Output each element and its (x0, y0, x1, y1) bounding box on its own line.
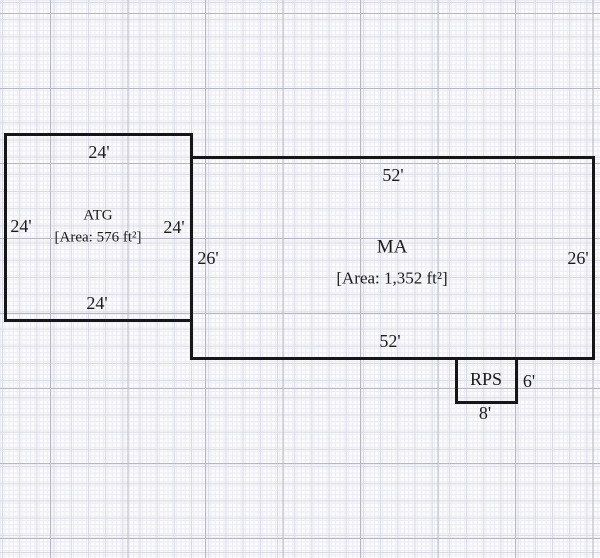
atg-dimension-right: 24' (163, 218, 184, 236)
ma-dimension-left: 26' (197, 249, 218, 267)
ma-dimension-top: 52' (382, 166, 403, 184)
rps-dimension-bottom: 8' (479, 404, 491, 422)
atg-dimension-top: 24' (88, 143, 109, 161)
atg-dimension-bottom: 24' (86, 294, 107, 312)
ma-room-name: MA (377, 238, 408, 257)
atg-room-name: ATG (83, 209, 112, 224)
ma-dimension-bottom: 52' (379, 332, 400, 350)
graph-paper-canvas: 24' 24' 24' 24' ATG [Area: 576 ft²] 52' … (0, 0, 600, 558)
ma-area-label: [Area: 1,352 ft²] (336, 270, 447, 287)
rps-dimension-right: 6' (523, 372, 535, 390)
atg-dimension-left: 24' (10, 217, 31, 235)
ma-dimension-right: 26' (567, 249, 588, 267)
rps-room-name: RPS (470, 370, 502, 388)
atg-area-label: [Area: 576 ft²] (55, 231, 142, 246)
room-outline-ma (190, 156, 595, 360)
